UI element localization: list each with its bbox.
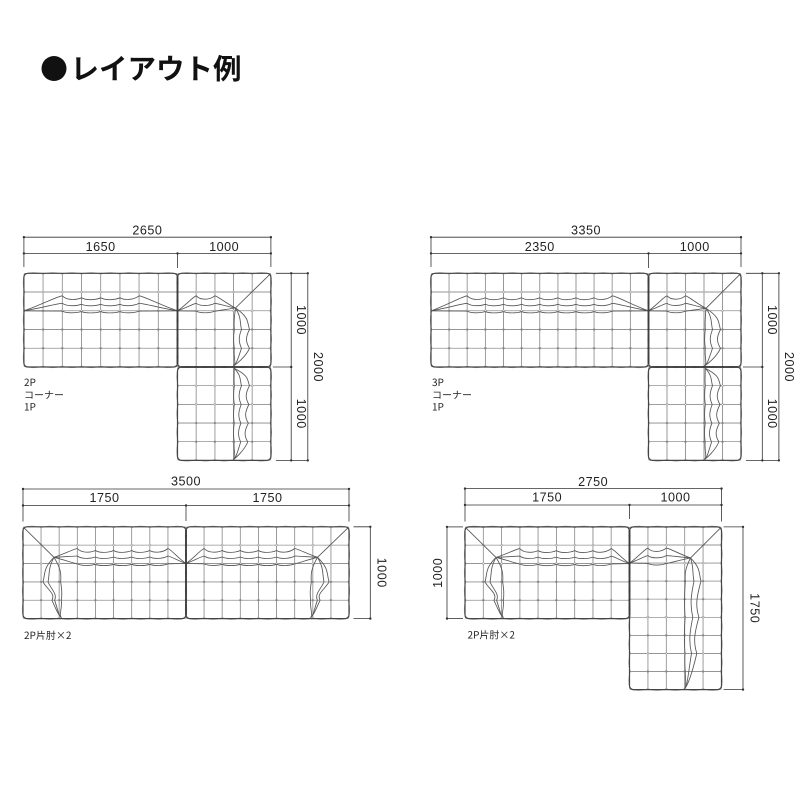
- svg-text:1000: 1000: [765, 399, 779, 429]
- svg-text:1000: 1000: [660, 491, 690, 505]
- svg-text:1750: 1750: [748, 593, 762, 623]
- svg-text:2000: 2000: [782, 352, 796, 382]
- svg-text:1000: 1000: [209, 240, 239, 254]
- svg-text:2350: 2350: [525, 240, 555, 254]
- svg-text:1750: 1750: [89, 491, 119, 505]
- svg-text:1000: 1000: [294, 399, 308, 429]
- svg-text:1650: 1650: [86, 240, 116, 254]
- svg-text:2650: 2650: [132, 224, 162, 238]
- svg-text:1000: 1000: [431, 558, 445, 588]
- svg-text:2000: 2000: [311, 352, 325, 382]
- svg-text:1000: 1000: [374, 558, 388, 588]
- svg-text:1000: 1000: [294, 305, 308, 335]
- svg-text:1000: 1000: [680, 240, 710, 254]
- svg-text:3500: 3500: [171, 475, 201, 489]
- svg-text:3350: 3350: [571, 224, 601, 238]
- svg-text:1750: 1750: [532, 491, 562, 505]
- svg-text:2750: 2750: [578, 475, 608, 489]
- svg-text:1750: 1750: [252, 491, 282, 505]
- svg-text:1000: 1000: [765, 305, 779, 335]
